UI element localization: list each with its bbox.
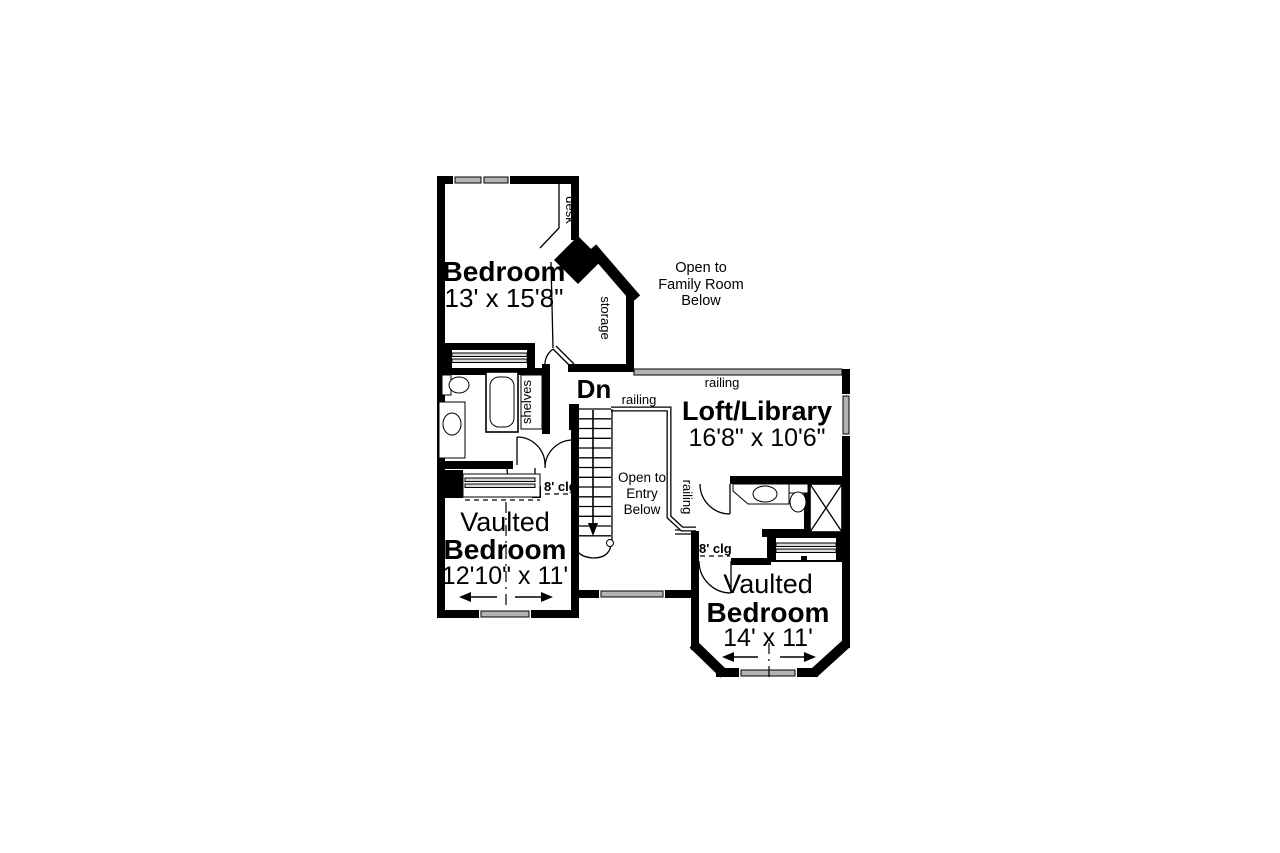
bedroom3-line1: Vaulted bbox=[723, 569, 813, 599]
bedroom2-dims: 12'10" x 11' bbox=[442, 562, 568, 590]
open-entry-line1: Open to bbox=[618, 470, 666, 485]
window-bedroom2 bbox=[481, 611, 529, 617]
shelves-label: shelves bbox=[519, 379, 534, 424]
bathroom-left-doors bbox=[517, 437, 573, 468]
window-bay bbox=[741, 670, 795, 676]
open-family-line3: Below bbox=[681, 293, 721, 309]
open-family-line1: Open to bbox=[675, 260, 727, 276]
window-hall bbox=[601, 591, 663, 597]
bathroom-right-door bbox=[700, 484, 730, 514]
window-top-2 bbox=[484, 177, 508, 183]
bedroom2-line1: Vaulted bbox=[460, 507, 550, 537]
open-entry-line3: Below bbox=[624, 502, 661, 517]
railing-label-top: railing bbox=[705, 375, 740, 390]
bathroom-left bbox=[439, 372, 573, 468]
window-right bbox=[843, 396, 849, 434]
bedroom3-dims: 14' x 11' bbox=[723, 624, 813, 652]
ceiling-label-left: 8' clg bbox=[544, 479, 577, 494]
stair-treads bbox=[578, 409, 611, 536]
loft-name: Loft/Library bbox=[682, 396, 832, 426]
open-entry-line2: Entry bbox=[626, 486, 658, 501]
bedroom1-dims: 13' x 15'8" bbox=[445, 283, 564, 313]
desk-nook bbox=[540, 184, 559, 248]
vanity-sink-left bbox=[439, 402, 465, 458]
desk-label: desk bbox=[563, 196, 578, 224]
storage-label: storage bbox=[598, 296, 613, 339]
railing-label-vertical: railing bbox=[680, 480, 695, 515]
bathtub bbox=[486, 372, 518, 432]
bedroom1-closet bbox=[452, 353, 527, 363]
loft-dims: 16'8" x 10'6" bbox=[688, 424, 825, 452]
floor-plan-drawing: Bedroom 13' x 15'8" Open to Family Room … bbox=[0, 0, 1280, 853]
bedroom2-line2: Bedroom bbox=[444, 534, 567, 565]
floor-plan-page: Bedroom 13' x 15'8" Open to Family Room … bbox=[0, 0, 1280, 853]
railing-label-stair: railing bbox=[622, 392, 657, 407]
open-family-line2: Family Room bbox=[658, 277, 743, 293]
ceiling-label-right: 8' clg bbox=[699, 541, 732, 556]
toilet-left bbox=[442, 375, 469, 395]
shower bbox=[810, 484, 842, 532]
staircase bbox=[575, 404, 614, 558]
window-top-1 bbox=[455, 177, 481, 183]
vanity-sink-right bbox=[733, 484, 789, 504]
stairs-down-label: Dn bbox=[577, 374, 612, 404]
bathroom-right bbox=[700, 484, 842, 532]
